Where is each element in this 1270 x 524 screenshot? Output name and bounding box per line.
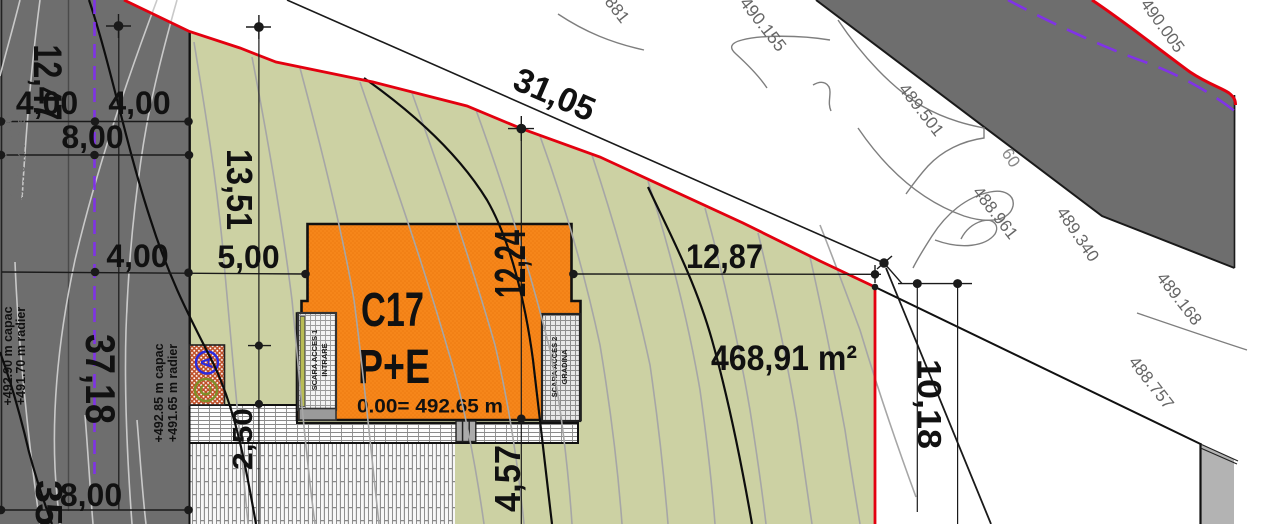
svg-text:INTRARE: INTRARE — [320, 343, 329, 376]
svg-text:8,00: 8,00 — [61, 119, 123, 155]
svg-text:C: C — [197, 384, 216, 396]
svg-text:12,87: 12,87 — [686, 238, 763, 276]
svg-text:468,91 m²: 468,91 m² — [711, 339, 857, 378]
svg-text:10,18: 10,18 — [911, 359, 948, 449]
svg-text:4,00: 4,00 — [106, 238, 168, 274]
svg-text:37,18: 37,18 — [77, 334, 124, 424]
svg-text:+492.90 m capac: +492.90 m capac — [1, 306, 15, 405]
svg-text:GRADINA: GRADINA — [560, 349, 569, 385]
svg-text:8,00: 8,00 — [60, 477, 122, 513]
svg-text:0.00= 492.65 m: 0.00= 492.65 m — [357, 397, 503, 418]
svg-text:+491.70 m radier: +491.70 m radier — [14, 113, 28, 211]
svg-text:P+E: P+E — [358, 341, 430, 394]
svg-text:C17: C17 — [361, 284, 424, 337]
svg-text:4,00: 4,00 — [108, 85, 170, 121]
svg-text:+492.85 m capac: +492.85 m capac — [152, 343, 166, 442]
svg-text:+491.70 m radier: +491.70 m radier — [14, 307, 28, 405]
svg-text:13,51: 13,51 — [219, 149, 260, 230]
svg-text:4,57: 4,57 — [487, 445, 528, 512]
svg-text:2,50: 2,50 — [227, 408, 258, 470]
svg-text:12,24: 12,24 — [486, 230, 535, 298]
svg-text:+492.90 m capac: +492.90 m capac — [1, 112, 15, 211]
svg-text:+491.65 m radier: +491.65 m radier — [166, 344, 180, 442]
svg-text:SCARA ACCES 1: SCARA ACCES 1 — [310, 330, 319, 391]
svg-text:5,00: 5,00 — [217, 239, 279, 275]
